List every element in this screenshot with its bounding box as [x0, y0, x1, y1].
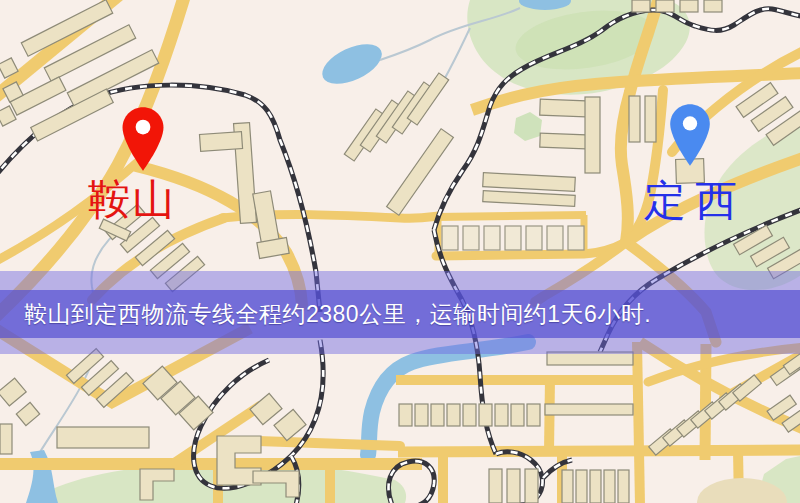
route-info-banner: 鞍山到定西物流专线全程约2380公里，运输时间约1天6小时. — [0, 290, 800, 338]
destination-label: 定西 — [644, 180, 746, 222]
route-info-text: 鞍山到定西物流专线全程约2380公里，运输时间约1天6小时. — [0, 299, 651, 330]
banner-fade-top — [0, 271, 800, 290]
destination-pin[interactable] — [668, 103, 712, 167]
destination-pin-icon — [668, 103, 712, 167]
map-screenshot: 鞍山 定西 鞍山到定西物流专线全程约2380公里，运输时间约1天6小时. — [0, 0, 800, 503]
banner-fade-bottom — [0, 338, 800, 354]
origin-label: 鞍山 — [88, 179, 176, 221]
origin-pin[interactable] — [120, 106, 166, 172]
origin-pin-icon — [120, 106, 166, 172]
map-canvas[interactable] — [0, 0, 800, 503]
